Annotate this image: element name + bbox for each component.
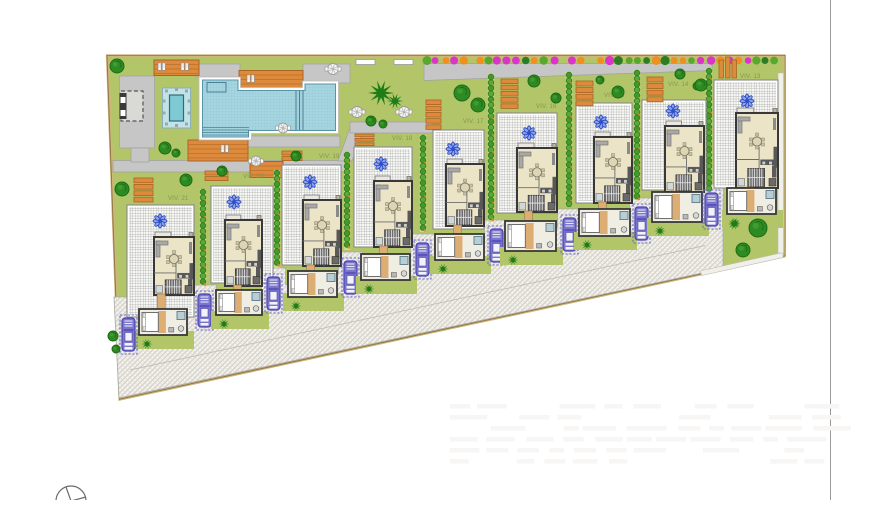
svg-text:VIV. 13: VIV. 13	[740, 74, 761, 80]
svg-text:VIV. 14: VIV. 14	[668, 82, 689, 88]
svg-text:VIV. 16: VIV. 16	[536, 104, 557, 110]
svg-text:VIV. 17: VIV. 17	[463, 119, 484, 125]
svg-text:VIV. 20: VIV. 20	[243, 174, 264, 180]
svg-text:VIV. 18: VIV. 18	[392, 136, 413, 142]
svg-text:VIV. 21: VIV. 21	[168, 196, 189, 202]
svg-text:VIV. 19: VIV. 19	[319, 154, 340, 160]
